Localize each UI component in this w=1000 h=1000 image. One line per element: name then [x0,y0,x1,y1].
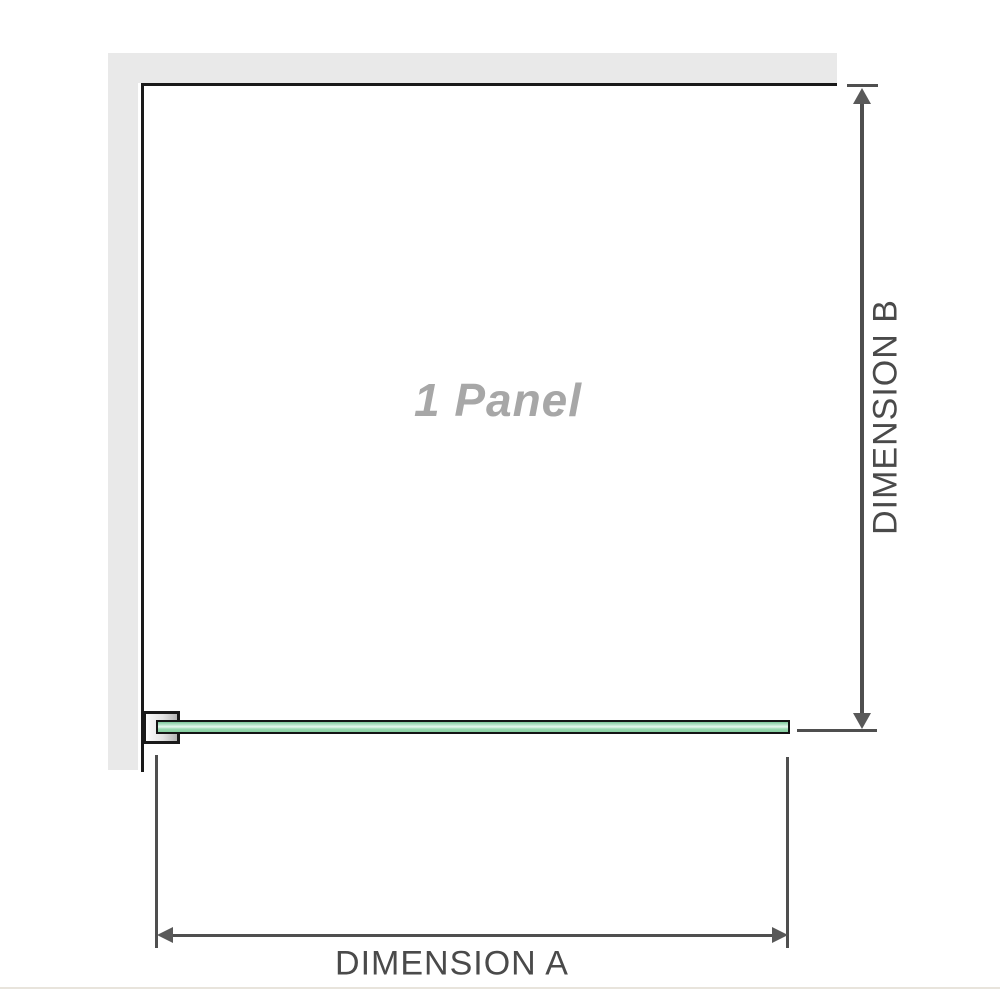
panel-count-label: 1 Panel [414,373,582,427]
bottom-divider [0,987,1000,989]
dimension-b-tick-top [847,84,878,87]
arrowhead-left-icon [157,927,173,943]
dimension-a-extension-right [786,757,789,948]
dimension-b-label: DIMENSION B [867,299,906,535]
wall-left [108,53,138,770]
dimension-b-tick-bottom [797,729,877,732]
dimension-a-label: DIMENSION A [335,945,569,984]
panel-outline-left [141,83,144,772]
wall-top [108,53,837,83]
glass-panel-plan-view [156,720,790,734]
dimension-b-line [860,98,864,720]
diagram-canvas: 1 Panel DIMENSION B DIMENSION A [0,0,1000,1000]
arrowhead-right-icon [772,927,788,943]
arrowhead-up-icon [853,88,871,104]
dimension-a-extension-left [155,755,158,948]
panel-outline-top [141,83,837,86]
dimension-a-line [166,934,778,937]
arrowhead-down-icon [853,713,871,729]
